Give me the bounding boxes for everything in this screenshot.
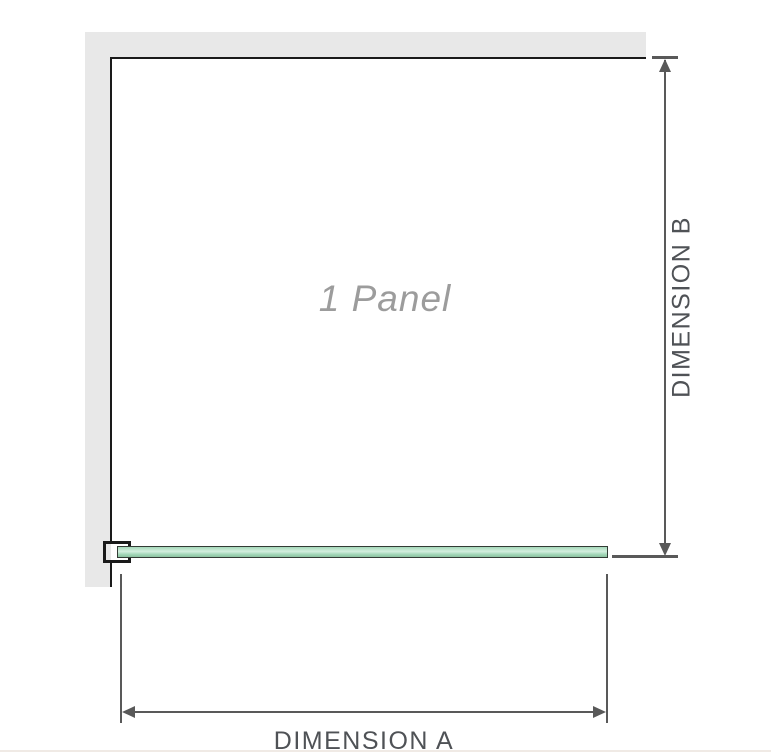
arrow-right-icon	[593, 706, 606, 718]
glass-panel-bar	[117, 546, 608, 558]
arrow-left-icon	[122, 706, 135, 718]
panel-left-edge-line-upper	[110, 57, 112, 541]
dimension-b-line	[664, 60, 666, 546]
arrow-up-icon	[659, 59, 671, 72]
shower-panel-dimension-diagram: 1 Panel DIMENSION B DIMENSION A	[0, 0, 771, 755]
panel-count-label: 1 Panel	[240, 278, 530, 320]
dimension-b-label: DIMENSION B	[668, 216, 697, 398]
wall-left	[85, 32, 111, 587]
panel-left-edge-line-lower	[110, 563, 112, 587]
dimension-b-bottom-tick	[612, 555, 678, 558]
dimension-a-line	[130, 711, 598, 713]
dimension-a-right-extension-line	[606, 574, 608, 723]
dimension-a-left-extension-line	[120, 574, 122, 723]
panel-top-edge-line	[110, 57, 646, 59]
wall-top	[85, 32, 646, 58]
bottom-divider-line	[0, 750, 771, 752]
